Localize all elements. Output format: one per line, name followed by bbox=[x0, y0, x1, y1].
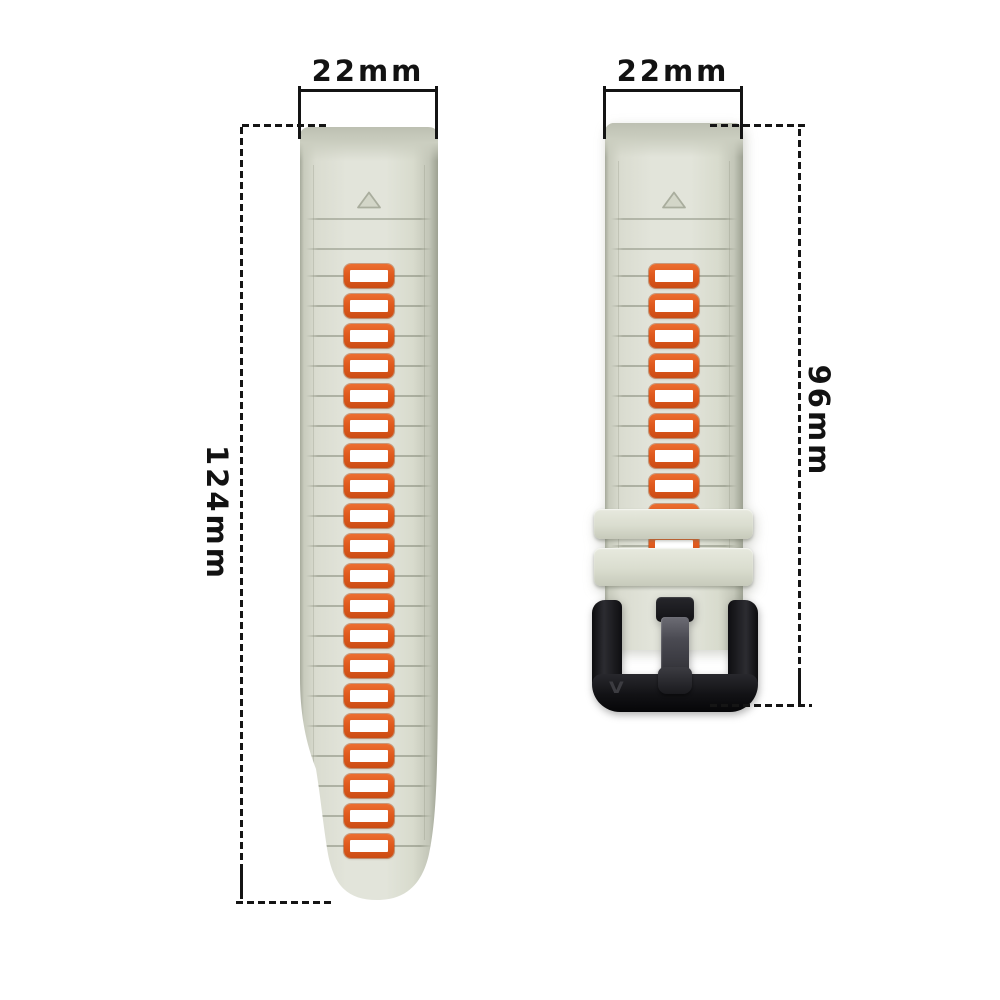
slot-row bbox=[605, 351, 743, 381]
slot-row bbox=[605, 441, 743, 471]
slot-row bbox=[300, 561, 438, 591]
slot-row bbox=[300, 591, 438, 621]
triangle-marker-icon bbox=[356, 190, 382, 210]
width-label-long: 22mm bbox=[268, 51, 468, 91]
dim-tick bbox=[435, 86, 438, 139]
slot-row bbox=[300, 321, 438, 351]
watch-strap-short bbox=[605, 123, 743, 650]
dim-line-width-short bbox=[605, 89, 742, 92]
dim-line-width-long bbox=[300, 89, 437, 92]
slot-row bbox=[300, 411, 438, 441]
pre-groove bbox=[611, 248, 737, 250]
extension-line bbox=[710, 124, 808, 127]
slot-row bbox=[300, 741, 438, 771]
slot-row bbox=[300, 381, 438, 411]
slot-row bbox=[605, 321, 743, 351]
keeper-loop-2 bbox=[594, 548, 753, 586]
dim-tick bbox=[740, 86, 743, 139]
slot-row bbox=[605, 471, 743, 501]
strap-dimension-diagram: V 22mm 22mm 124mm 96mm bbox=[0, 0, 1000, 1000]
strap-lug bbox=[300, 127, 438, 161]
slot-row bbox=[300, 471, 438, 501]
slot-row bbox=[300, 621, 438, 651]
triangle-marker-icon bbox=[661, 190, 687, 210]
width-label-short: 22mm bbox=[573, 51, 773, 91]
extension-line bbox=[710, 704, 812, 707]
strap-lug bbox=[605, 123, 743, 157]
slot-rows bbox=[300, 261, 438, 861]
pre-groove bbox=[611, 218, 737, 220]
slot-row bbox=[300, 291, 438, 321]
extension-line bbox=[236, 901, 334, 904]
dim-tick bbox=[603, 86, 606, 139]
slot-row bbox=[300, 801, 438, 831]
length-label-short: 96mm bbox=[799, 321, 839, 521]
prong-tip bbox=[658, 667, 692, 694]
buckle: V bbox=[592, 600, 758, 712]
slot-row bbox=[605, 261, 743, 291]
slot-row bbox=[605, 381, 743, 411]
slot-row bbox=[300, 651, 438, 681]
slot-row bbox=[605, 291, 743, 321]
pre-groove bbox=[306, 248, 432, 250]
slot-row bbox=[300, 531, 438, 561]
slot-row bbox=[300, 711, 438, 741]
slot-row bbox=[300, 771, 438, 801]
dim-line-length-long bbox=[240, 127, 243, 899]
dim-tick bbox=[298, 86, 301, 139]
buckle-prong bbox=[656, 597, 694, 696]
slot-row bbox=[605, 411, 743, 441]
slot-row bbox=[300, 681, 438, 711]
slot-row bbox=[300, 441, 438, 471]
slot-row bbox=[300, 831, 438, 861]
watch-strap-long bbox=[300, 127, 438, 900]
slot-row bbox=[300, 261, 438, 291]
length-label-long: 124mm bbox=[197, 413, 237, 613]
slot-row bbox=[300, 351, 438, 381]
extension-line bbox=[242, 124, 328, 127]
pre-groove bbox=[306, 218, 432, 220]
keeper-loop-1 bbox=[594, 509, 753, 539]
prong-shaft bbox=[661, 617, 689, 672]
dim-line-end-cap bbox=[240, 867, 243, 899]
dim-line-end-cap bbox=[798, 675, 801, 706]
slot-row bbox=[300, 501, 438, 531]
buckle-logo: V bbox=[609, 679, 624, 697]
